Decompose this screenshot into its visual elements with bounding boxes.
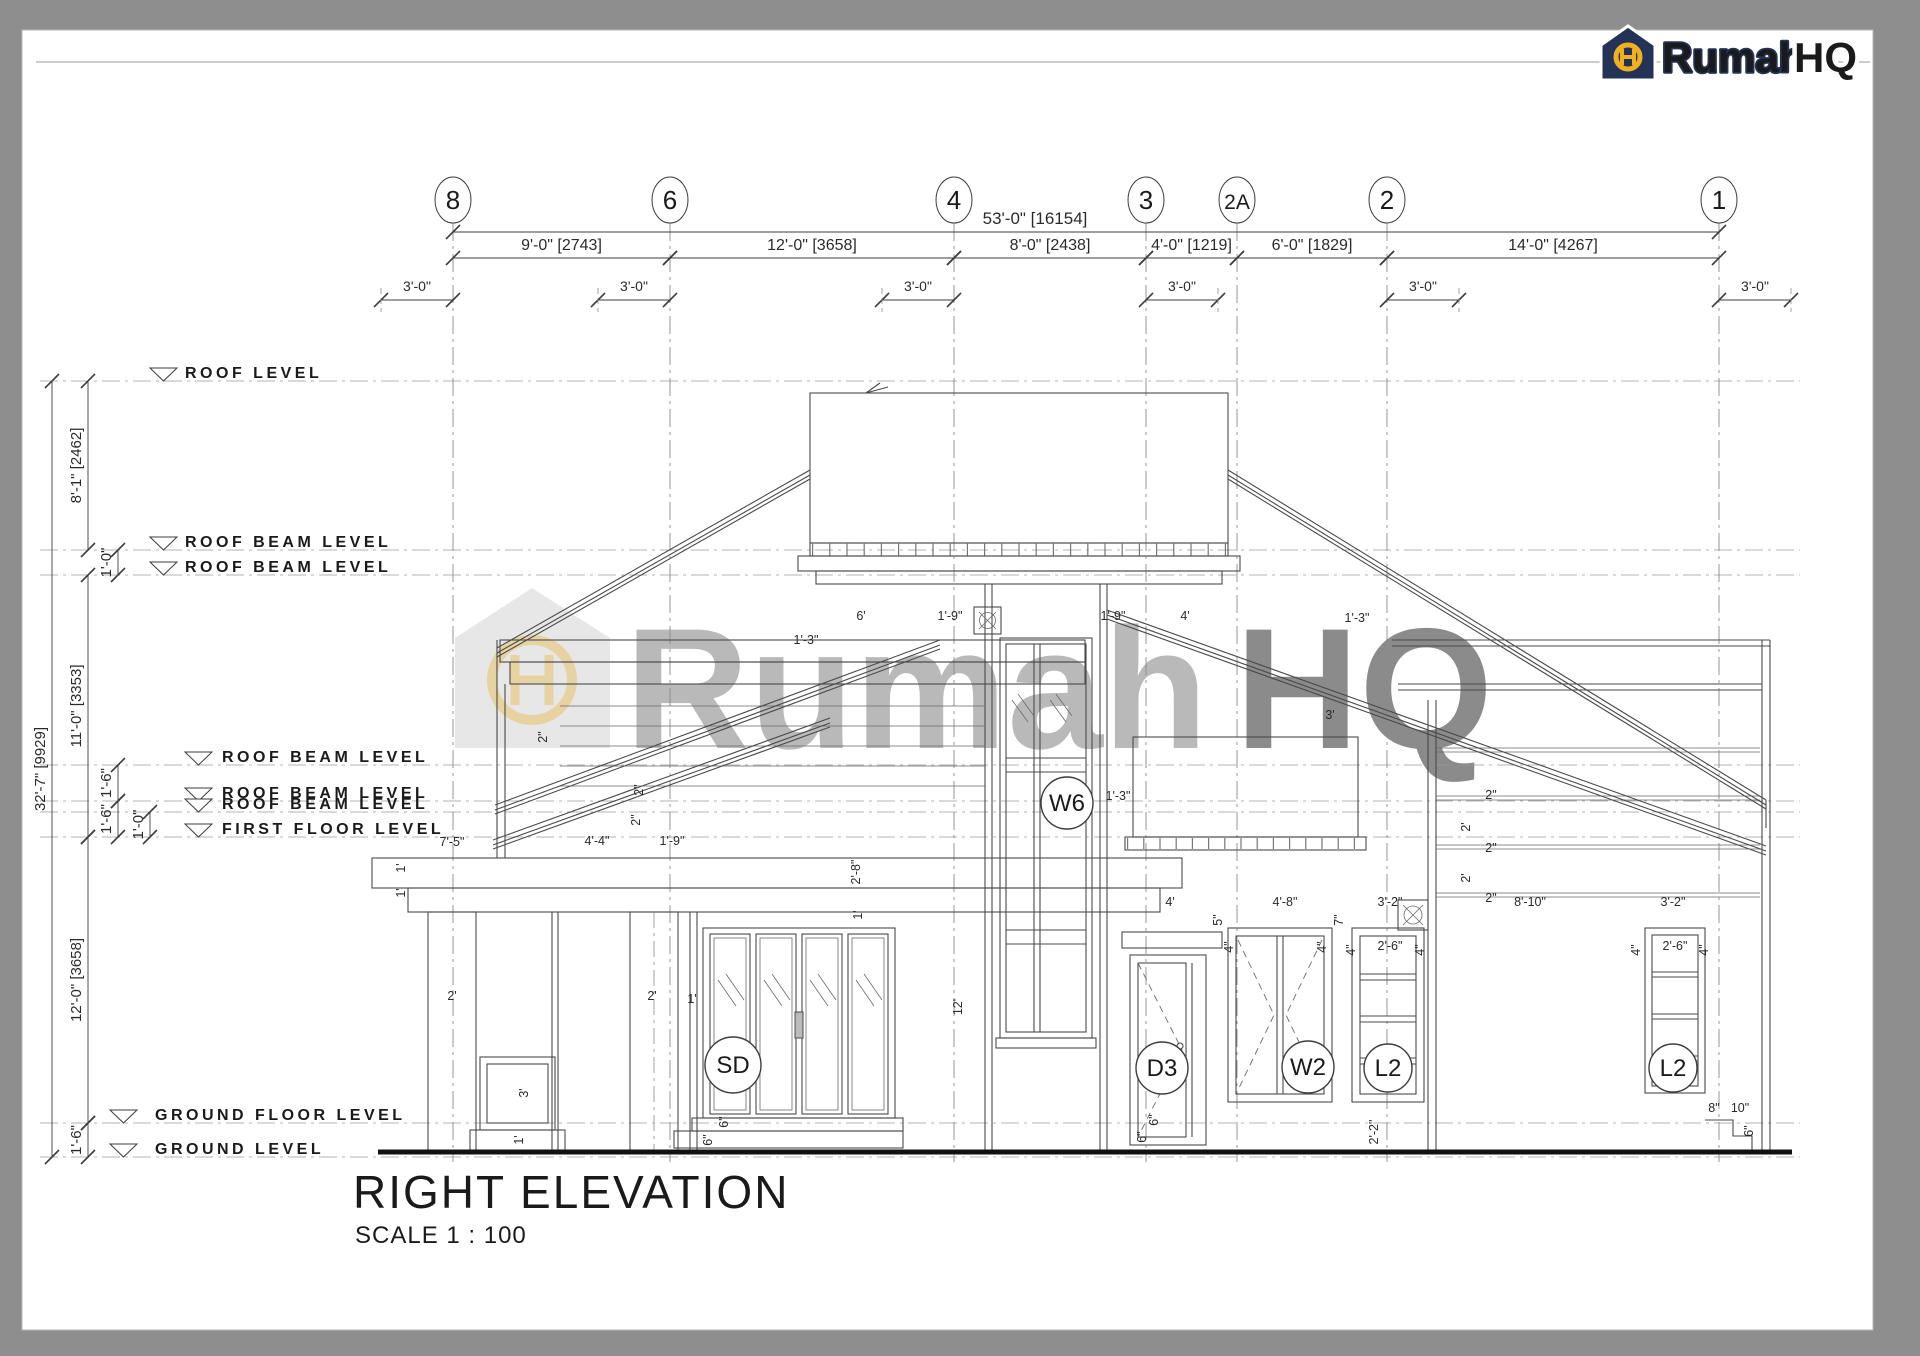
subdim-text: 3'-0" <box>620 278 648 294</box>
dim-annotation: 1'-3" <box>1106 789 1131 803</box>
tag-label: W6 <box>1049 790 1085 817</box>
dim-annotation: 3'-2" <box>1378 895 1403 909</box>
dim-annotation: 3'-2" <box>1661 895 1686 909</box>
left-dim-text: 11'-0" [3353] <box>68 665 85 748</box>
grid-bubble-label: 2A <box>1224 191 1250 214</box>
dim-annotation: 2' <box>1459 822 1473 831</box>
dim-annotation: 6" <box>1135 1131 1149 1142</box>
dim-annotation: 2'-6" <box>1663 939 1688 953</box>
dim-annotation: 4'-4" <box>585 834 610 848</box>
dim-annotation: 2'-6" <box>1378 939 1403 953</box>
grid-bubble-label: 8 <box>446 185 460 215</box>
subdim-text: 3'-0" <box>904 278 932 294</box>
dim-annotation: 4'-8" <box>1273 895 1298 909</box>
left-dim-text: 1'-6" <box>98 768 115 798</box>
logo-word1: Rumah <box>1662 34 1804 81</box>
dim-annotation: 2" <box>632 784 646 795</box>
dim-annotation: 6" <box>717 1116 731 1127</box>
left-dim-text: 32'-7" [9929] <box>32 727 49 811</box>
dim-annotation: 1' <box>851 910 865 919</box>
grid-bubble-label: 2 <box>1380 185 1394 215</box>
dim-annotation: 4' <box>1165 895 1174 909</box>
dim-annotation: 4' <box>1180 609 1189 623</box>
dim-annotation: 12' <box>951 999 965 1015</box>
dim-annotation: 1' <box>394 863 408 872</box>
grid-bubble-label: 4 <box>947 185 961 215</box>
dim-annotation: 6" <box>1147 1114 1161 1125</box>
dim-annotation: 8'-10" <box>1514 895 1546 909</box>
level-label: FIRST FLOOR LEVEL <box>222 821 444 838</box>
dim-annotation: 6" <box>1742 1125 1756 1136</box>
tag-label: SD <box>716 1052 749 1079</box>
level-label: ROOF BEAM LEVEL <box>185 559 391 576</box>
level-label: GROUND LEVEL <box>155 1141 324 1158</box>
dim-annotation: 3' <box>517 1088 531 1097</box>
subdim-text: 3'-0" <box>1409 278 1437 294</box>
left-dim-text: 8'-1" [2462] <box>68 428 85 504</box>
dim-annotation: 7'-5" <box>440 835 465 849</box>
dim-annotation: 2' <box>1459 873 1473 882</box>
left-dim-text: 1'-0" <box>130 810 147 840</box>
segment-dim-text: 14'-0" [4267] <box>1508 237 1598 254</box>
elevation-drawing: Rumah HQ ROOF LEVELROOF BEAM LEVELROOF B… <box>0 0 1920 1356</box>
segment-dim-text: 9'-0" [2743] <box>521 237 602 254</box>
dim-annotation: 2' <box>447 989 456 1003</box>
dim-annotation: 4" <box>1629 944 1643 955</box>
logo-word2: HQ <box>1794 34 1857 81</box>
dim-annotation: 4" <box>1413 944 1427 955</box>
door-handle <box>795 1012 803 1038</box>
dim-annotation: 4" <box>1344 944 1358 955</box>
dim-annotation: 4" <box>1222 941 1236 952</box>
rumahhq-logo: Rumah Rumah HQ HQ <box>1601 26 1857 81</box>
subdim-text: 3'-0" <box>1168 278 1196 294</box>
level-label: GROUND FLOOR LEVEL <box>155 1107 406 1124</box>
tag-label: D3 <box>1147 1055 1178 1082</box>
dim-annotation: 2" <box>1485 841 1496 855</box>
segment-dim-text: 6'-0" [1829] <box>1272 237 1353 254</box>
dim-annotation: 2" <box>536 731 550 742</box>
left-dim-text: 1'-6" <box>98 804 115 834</box>
level-label: ROOF BEAM LEVEL <box>222 749 428 766</box>
grid-bubble-label: 1 <box>1712 185 1726 215</box>
left-dim-text: 1'-0" <box>98 548 115 578</box>
dim-annotation: 1'-9" <box>1101 609 1126 623</box>
dim-annotation: 10" <box>1731 1101 1749 1115</box>
dim-annotation: 5" <box>1211 914 1225 925</box>
segment-dim-text: 8'-0" [2438] <box>1010 237 1091 254</box>
dim-annotation: 1' <box>512 1135 526 1144</box>
dim-annotation: 1'-9" <box>660 834 685 848</box>
grid-bubble-label: 3 <box>1139 185 1153 215</box>
tag-label: L2 <box>1660 1055 1687 1082</box>
tag-label: L2 <box>1375 1055 1402 1082</box>
drawing-title: RIGHT ELEVATION <box>353 1166 789 1218</box>
segment-dim-text: 4'-0" [1219] <box>1151 237 1232 254</box>
dim-annotation: 4" <box>1697 944 1711 955</box>
dim-annotation: 1'-3" <box>1345 611 1370 625</box>
dim-annotation: 6' <box>856 609 865 623</box>
dim-annotation: 1' <box>394 888 408 897</box>
dim-annotation: 3' <box>1325 708 1334 722</box>
dim-annotation: 6" <box>701 1134 715 1145</box>
subdim-text: 3'-0" <box>1741 278 1769 294</box>
dim-annotation: 2'-8" <box>849 860 863 885</box>
level-label: ROOF LEVEL <box>185 365 322 382</box>
subdim-text: 3'-0" <box>403 278 431 294</box>
dim-annotation: 1'-3" <box>794 633 819 647</box>
screenshot-stage: Rumah HQ ROOF LEVELROOF BEAM LEVELROOF B… <box>0 0 1920 1356</box>
drawing-scale: SCALE 1 : 100 <box>355 1222 527 1249</box>
dim-annotation: 4" <box>1315 941 1329 952</box>
dim-annotation: 1'-9" <box>938 609 963 623</box>
dim-annotation: 2" <box>1485 891 1496 905</box>
tag-label: W2 <box>1290 1054 1326 1081</box>
segment-dim-text: 12'-0" [3658] <box>767 237 857 254</box>
dim-annotation: 2" <box>629 814 643 825</box>
left-dim-text: 12'-0" [3658] <box>68 938 85 1022</box>
dim-annotation: 2" <box>1485 788 1496 802</box>
dim-annotation: 2'-2" <box>1367 1120 1381 1145</box>
grid-bubble-label: 6 <box>663 185 677 215</box>
overall-dim-text: 53'-0" [16154] <box>983 209 1088 228</box>
dim-annotation: 8" <box>1708 1101 1719 1115</box>
dim-annotation: 1' <box>687 992 696 1006</box>
dim-annotation: 2' <box>647 989 656 1003</box>
level-label: ROOF BEAM LEVEL <box>185 534 391 551</box>
dim-annotation: 7" <box>1332 914 1346 925</box>
left-dim-text: 1'-6" <box>68 1125 85 1155</box>
level-label: ROOF BEAM LEVEL <box>222 796 428 813</box>
